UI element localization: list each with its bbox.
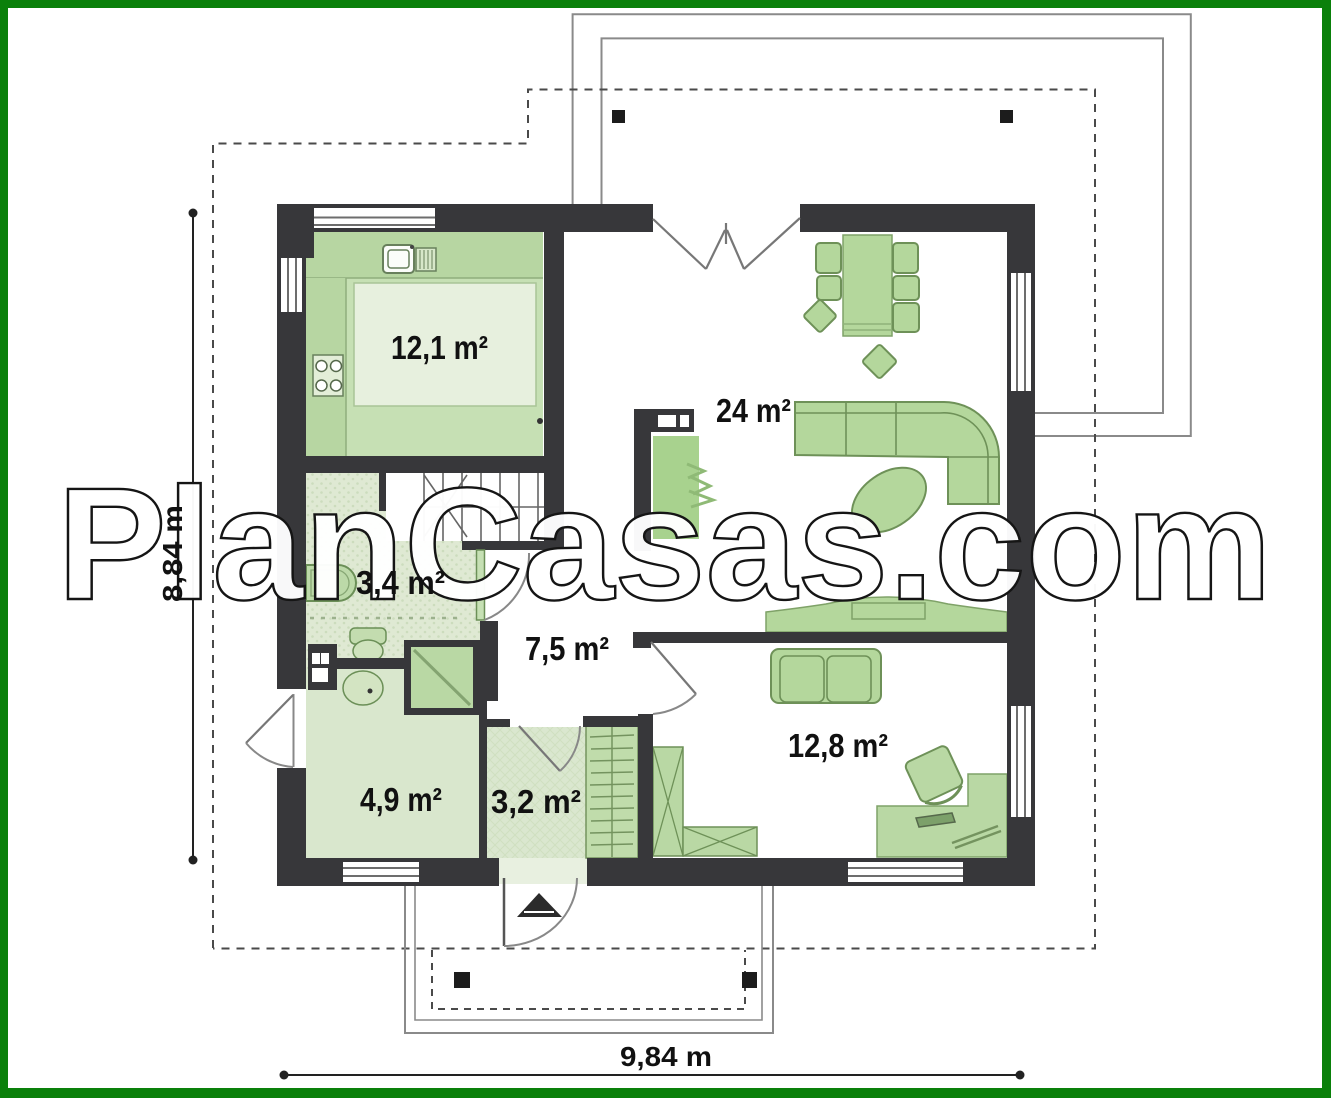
svg-text:3,2 m²: 3,2 m² bbox=[491, 783, 581, 820]
svg-text:PlanCasas.com: PlanCasas.com bbox=[57, 454, 1272, 633]
svg-text:12,8 m²: 12,8 m² bbox=[788, 727, 888, 764]
svg-text:7,5 m²: 7,5 m² bbox=[525, 630, 609, 667]
svg-text:8,84 m: 8,84 m bbox=[157, 505, 188, 602]
svg-text:24 m²: 24 m² bbox=[716, 392, 791, 429]
svg-text:3,4 m²: 3,4 m² bbox=[356, 564, 445, 601]
svg-text:4,9 m²: 4,9 m² bbox=[360, 781, 442, 818]
svg-text:12,1 m²: 12,1 m² bbox=[391, 329, 488, 366]
svg-text:9,84 m: 9,84 m bbox=[620, 1041, 712, 1072]
